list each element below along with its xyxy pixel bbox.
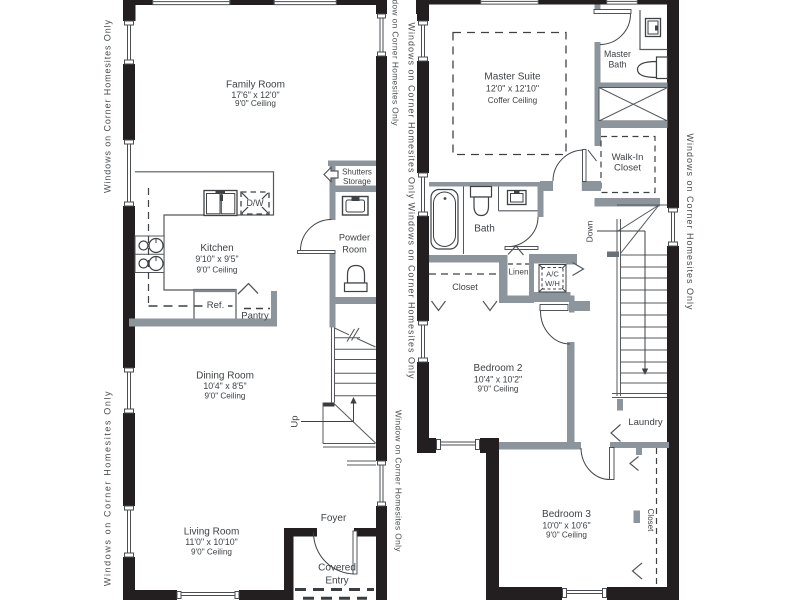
svg-text:Foyer: Foyer (321, 513, 347, 524)
svg-text:10'4" x 10'2": 10'4" x 10'2" (474, 375, 522, 385)
svg-text:Room: Room (342, 245, 367, 255)
svg-text:Ref.: Ref. (207, 300, 224, 311)
svg-text:Closet: Closet (614, 163, 641, 174)
svg-text:Closet: Closet (452, 282, 478, 292)
svg-text:9'0" Ceiling: 9'0" Ceiling (197, 266, 238, 275)
svg-text:Closet: Closet (646, 509, 655, 532)
svg-text:10'4" x 8'5": 10'4" x 8'5" (203, 381, 246, 391)
svg-text:Windows on Corner Homesites On: Windows on Corner Homesites Only (407, 22, 417, 199)
svg-text:Walk-In: Walk-In (612, 152, 644, 163)
svg-text:Bedroom 3: Bedroom 3 (542, 509, 591, 520)
svg-text:9'0" Ceiling: 9'0" Ceiling (235, 99, 276, 108)
svg-text:Master Suite: Master Suite (484, 72, 541, 83)
svg-text:Powder: Powder (339, 233, 370, 243)
svg-text:Window on Corner Homesites Onl: Window on Corner Homesites Only (391, 0, 401, 126)
svg-text:Storage: Storage (343, 177, 372, 186)
svg-text:Shutters: Shutters (342, 168, 372, 177)
svg-text:Window on Corner Homesites Onl: Window on Corner Homesites Only (394, 410, 404, 552)
svg-text:Windows on Corner Homesites On: Windows on Corner Homesites Only (103, 390, 113, 586)
svg-text:A/C: A/C (546, 270, 559, 279)
svg-text:12'0" x 12'10": 12'0" x 12'10" (486, 84, 539, 94)
svg-text:Bath: Bath (608, 60, 626, 70)
svg-text:Living Room: Living Room (184, 527, 240, 538)
svg-text:9'0" Ceiling: 9'0" Ceiling (546, 531, 587, 540)
svg-text:Covered: Covered (318, 563, 356, 574)
svg-text:D/W: D/W (246, 198, 264, 208)
svg-text:W/H: W/H (545, 279, 560, 288)
svg-text:10'0" x 10'6": 10'0" x 10'6" (542, 521, 590, 531)
svg-text:9'0" Ceiling: 9'0" Ceiling (205, 392, 246, 401)
svg-text:Bath: Bath (474, 224, 495, 235)
svg-text:Kitchen: Kitchen (200, 243, 233, 254)
svg-text:Entry: Entry (325, 576, 348, 587)
svg-text:Linen: Linen (508, 268, 528, 277)
svg-text:Down: Down (585, 220, 595, 242)
svg-text:Pantry: Pantry (241, 311, 269, 322)
svg-text:Laundry: Laundry (628, 417, 663, 428)
svg-text:Bedroom 2: Bedroom 2 (474, 363, 523, 374)
svg-text:9'0" Ceiling: 9'0" Ceiling (191, 548, 232, 557)
svg-text:9'0" Ceiling: 9'0" Ceiling (478, 385, 519, 394)
svg-text:Windows on Corner Homesites On: Windows on Corner Homesites Only (407, 202, 417, 379)
svg-text:Windows on Corner Homesites On: Windows on Corner Homesites Only (103, 19, 113, 193)
svg-text:11'0" x 10'10": 11'0" x 10'10" (185, 537, 238, 547)
svg-text:9'10" x 9'5": 9'10" x 9'5" (195, 254, 238, 264)
svg-text:Windows on Corner Homesites On: Windows on Corner Homesites Only (685, 133, 695, 310)
svg-text:Up: Up (290, 415, 301, 427)
svg-text:Coffer Ceiling: Coffer Ceiling (488, 96, 538, 105)
svg-text:Master: Master (604, 49, 631, 59)
